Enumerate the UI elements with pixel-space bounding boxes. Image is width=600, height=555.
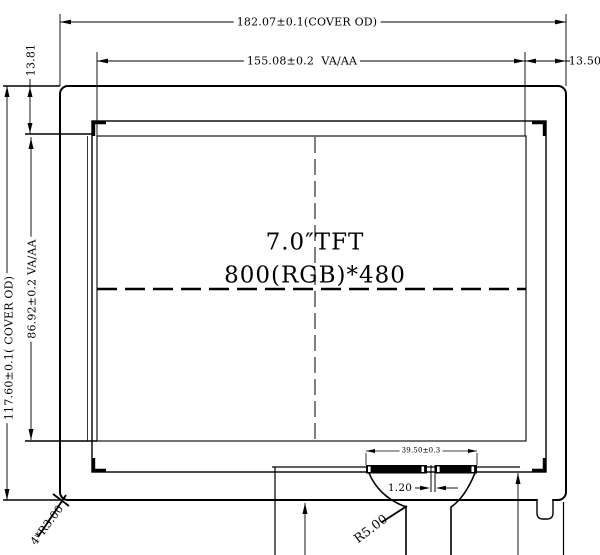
arrowhead — [525, 59, 536, 64]
panel-outline — [92, 121, 546, 472]
tft-panel-mechanical-drawing: 182.07±0.1(COVER OD) 155.08±0.2 VA/AA 13… — [0, 0, 600, 555]
arrowhead — [555, 20, 566, 25]
arrowhead — [29, 429, 34, 440]
display-resolution-label: 800(RGB)*480 — [224, 265, 406, 288]
arrowhead — [97, 59, 108, 64]
arrowhead — [60, 20, 71, 25]
arrowhead — [468, 449, 477, 453]
bonding-pad-left — [366, 465, 427, 474]
panel-corner-brackets — [94, 123, 545, 471]
arrowhead — [29, 138, 34, 149]
arrowhead — [514, 59, 525, 64]
arrowhead — [420, 486, 430, 490]
dim-edge-right-label: 13.50 — [569, 56, 600, 67]
arrowhead — [303, 503, 308, 514]
bonding-pad-right — [435, 465, 477, 474]
display-size-label: 7.0″TFT — [266, 232, 365, 255]
arrowhead — [555, 59, 566, 64]
dim-aa-width-label: 155.08±0.2 VA/AA — [244, 56, 360, 67]
dim-cover-width-label: 182.07±0.1(COVER OD) — [234, 17, 381, 28]
dim-pad-gap-label: 1.20 — [388, 483, 412, 494]
arrowhead — [366, 449, 375, 453]
dim-aa-height-label: 86.92±0.2 VA/AA — [26, 236, 37, 341]
notch-mask — [538, 498, 552, 502]
dim-cover-height-label: 117.60±0.1( COVER OD) — [3, 273, 14, 423]
dim-fpc-pad-width-label: 39.50±0.3 — [400, 448, 443, 455]
dim-edge-top-label: 13.81 — [26, 44, 37, 77]
bottom-edge-notch — [537, 500, 553, 519]
arrowhead — [516, 473, 521, 484]
arrowhead — [5, 86, 10, 97]
arrowhead — [436, 486, 446, 490]
arrowhead — [5, 489, 10, 500]
arrowhead — [28, 87, 33, 97]
arrowhead — [28, 123, 33, 133]
cover-glass-outline — [60, 86, 566, 500]
fpc-tail-right — [451, 473, 475, 555]
